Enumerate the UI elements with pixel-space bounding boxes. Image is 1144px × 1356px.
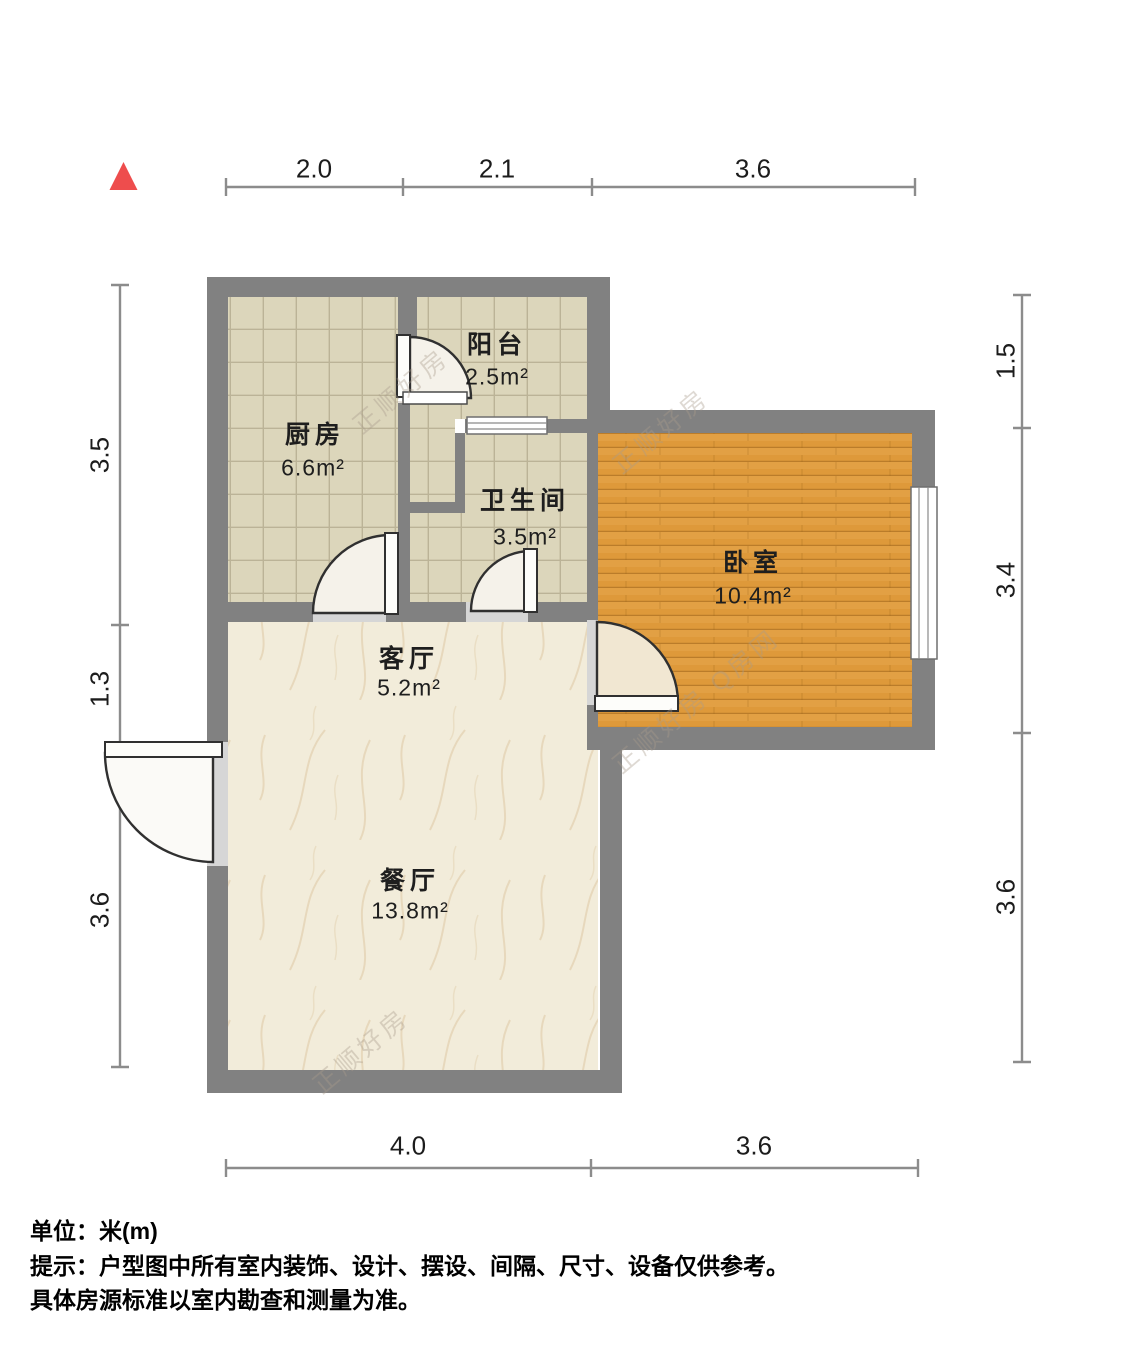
north-arrow-icon [110,162,138,190]
dim-left-1: 3.5 [85,437,116,473]
dimension-line-right [1013,295,1031,1062]
room-kitchen-area: 6.6m² [281,455,345,482]
wall-balcony-right [587,277,610,410]
room-kitchen-name: 厨房 [285,415,345,451]
dim-left-3: 3.6 [85,892,116,928]
room-dining-name: 餐厅 [380,861,440,897]
dimension-line-bottom [226,1159,918,1177]
bathroom-door-leaf [524,549,537,612]
dim-top-2: 2.1 [479,154,515,185]
balcony-window [467,417,547,434]
room-bedroom-area: 10.4m² [714,583,792,610]
dim-left-2: 1.3 [85,671,116,707]
bathroom-floor-arm [410,513,465,602]
note-tip-1: 提示：户型图中所有室内装饰、设计、摆设、间隔、尺寸、设备仅供参考。 [30,1247,789,1281]
room-dining-area: 13.8m² [371,898,449,925]
entrance-door-leaf [105,742,222,757]
dim-top-1: 2.0 [296,154,332,185]
wall-top [207,277,610,297]
wall-left [207,277,228,1093]
wall-kitchen-balcony [398,297,417,337]
room-living-name: 客厅 [379,639,439,675]
kitchen-door-leaf [385,533,398,614]
room-balcony-name: 阳台 [467,325,527,361]
room-bathroom-area: 3.5m² [493,524,557,551]
balcony-floor-arm [410,398,455,502]
room-living-area: 5.2m² [377,675,441,702]
wall-living-top [228,602,598,622]
dim-bottom-2: 3.6 [736,1131,772,1162]
room-balcony-area: 2.5m² [465,364,529,391]
wall-bottom [207,1070,622,1093]
room-bathroom-name: 卫生间 [480,481,570,517]
dim-right-1: 1.5 [991,343,1022,379]
note-unit: 单位：米(m) [30,1212,158,1246]
note-tip-2: 具体房源标准以室内勘查和测量为准。 [30,1281,421,1315]
wall-bathroom-left [455,433,465,513]
room-bedroom-name: 卧室 [723,543,783,579]
wall-jog [398,502,465,513]
wall-corridor-bedroom [587,433,598,620]
floor-plan-drawing [0,0,1144,1356]
floor-plan: 正顺好房 正顺好房 正顺好房 Q房网 正顺好房 厨房 6.6m² 阳台 2.5m… [0,0,1144,1356]
dim-bottom-1: 4.0 [390,1131,426,1162]
wall-dining-right [600,727,622,1093]
dim-right-3: 3.6 [991,879,1022,915]
bedroom-window [911,487,937,659]
dim-right-2: 3.4 [991,562,1022,598]
dim-top-3: 3.6 [735,154,771,185]
